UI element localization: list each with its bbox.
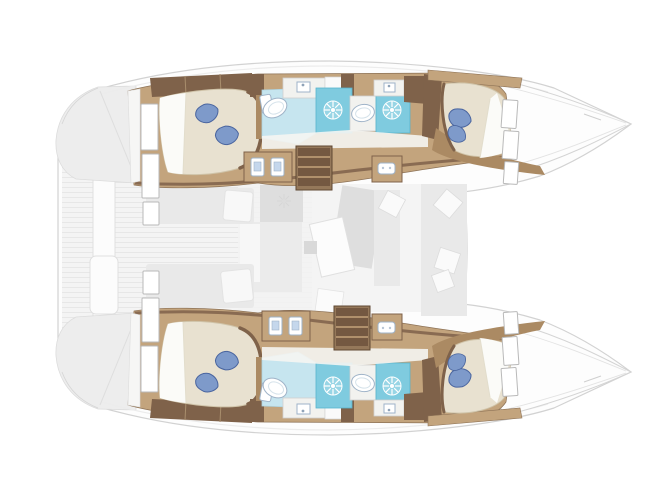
starboard-companionway-stairs — [334, 306, 370, 350]
port-toiletry-counter — [244, 152, 292, 182]
starboard-toiletry-counter — [262, 311, 310, 341]
table-base — [304, 241, 317, 254]
catamaran-floor-plan — [0, 0, 662, 496]
berth-pillow — [220, 269, 253, 304]
floor-plan-canvas — [0, 0, 662, 496]
port-companionway-stairs — [296, 146, 332, 190]
berth-pillow — [223, 190, 254, 222]
hatch-flake — [277, 194, 291, 208]
